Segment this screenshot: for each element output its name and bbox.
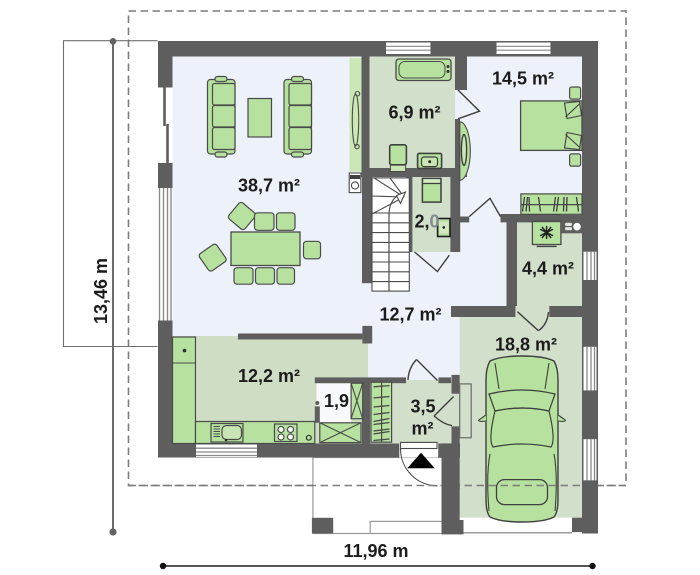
svg-text:2,0: 2,0	[414, 212, 439, 232]
svg-text:38,7 m²: 38,7 m²	[238, 176, 300, 196]
svg-text:18,8 m²: 18,8 m²	[495, 335, 557, 355]
svg-text:6,9 m²: 6,9 m²	[388, 103, 440, 123]
svg-text:12,7 m²: 12,7 m²	[379, 305, 441, 325]
svg-text:3,5: 3,5	[410, 397, 435, 417]
svg-text:13,46 m: 13,46 m	[91, 258, 111, 324]
svg-text:m²: m²	[412, 419, 434, 439]
svg-text:12,2 m²: 12,2 m²	[238, 366, 300, 386]
svg-text:11,96 m: 11,96 m	[343, 541, 408, 561]
svg-text:14,5 m²: 14,5 m²	[492, 69, 554, 89]
svg-text:1,9: 1,9	[324, 391, 349, 411]
svg-text:4,4 m²: 4,4 m²	[522, 259, 574, 279]
